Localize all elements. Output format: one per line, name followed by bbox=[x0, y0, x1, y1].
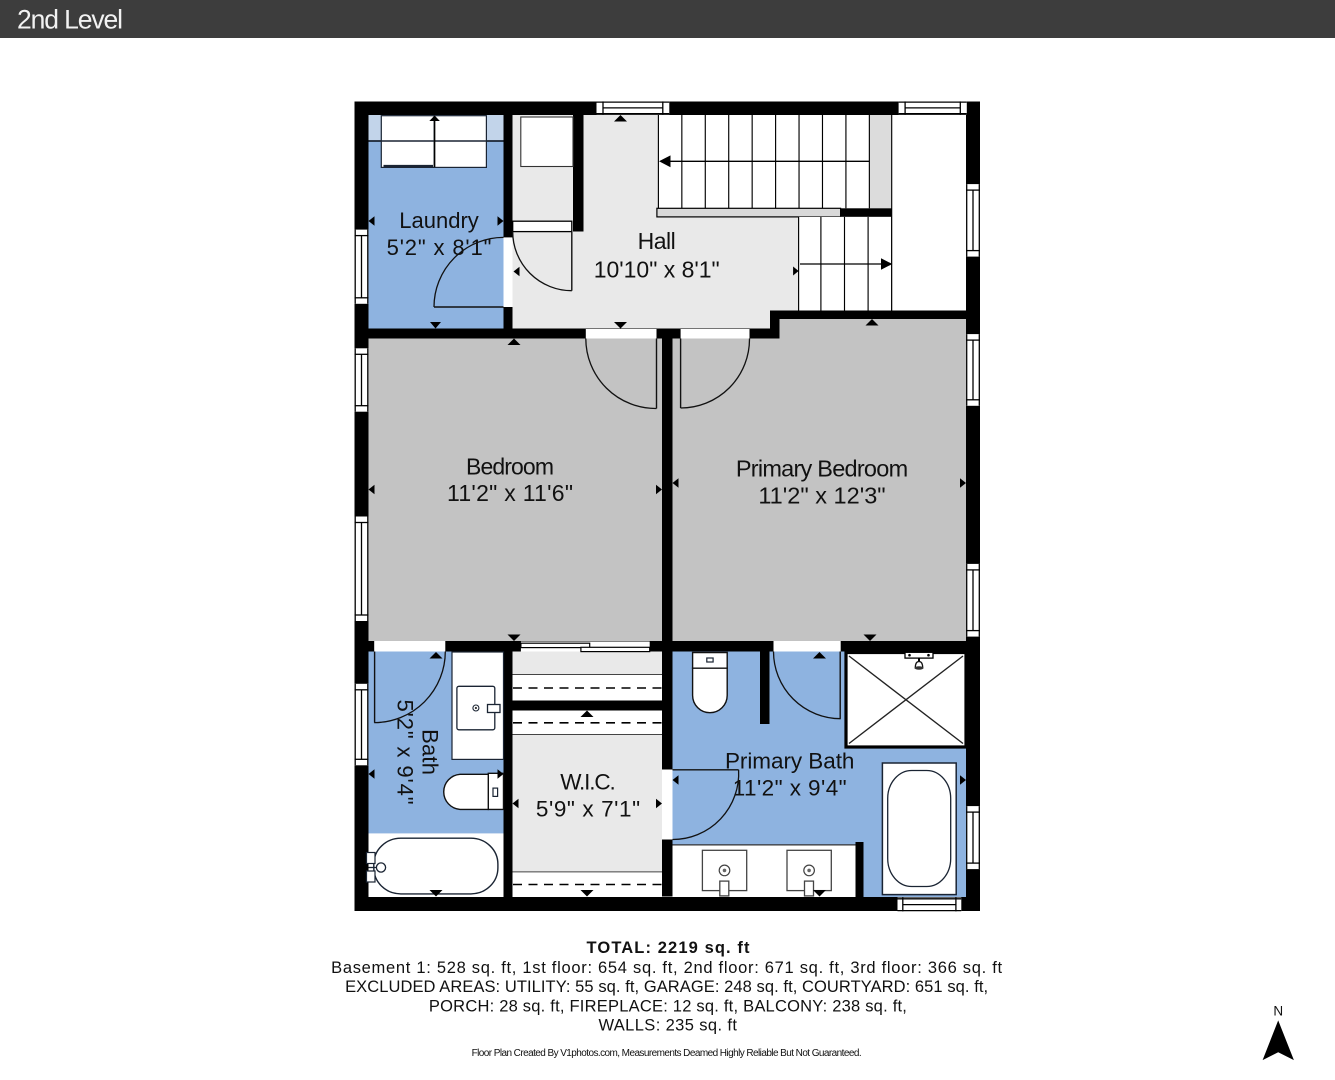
svg-text:11'2" x 12'3": 11'2" x 12'3" bbox=[758, 482, 885, 508]
svg-text:Basement 1: 528 sq. ft, 1st fl: Basement 1: 528 sq. ft, 1st floor: 654 s… bbox=[331, 959, 1002, 977]
svg-text:5'2" x 8'1": 5'2" x 8'1" bbox=[387, 235, 492, 260]
svg-text:Bath: Bath bbox=[418, 729, 443, 775]
svg-text:EXCLUDED AREAS: UTILITY: 55 sq: EXCLUDED AREAS: UTILITY: 55 sq. ft, GARA… bbox=[345, 978, 988, 996]
svg-text:11'2" x 11'6": 11'2" x 11'6" bbox=[447, 480, 573, 506]
svg-text:W.I.C.: W.I.C. bbox=[560, 770, 616, 795]
svg-text:Bedroom: Bedroom bbox=[466, 453, 554, 479]
svg-text:5'2" x 9'4": 5'2" x 9'4" bbox=[393, 700, 418, 805]
svg-text:Primary Bedroom: Primary Bedroom bbox=[736, 456, 908, 482]
svg-text:N: N bbox=[1273, 1004, 1283, 1019]
svg-text:Primary Bath: Primary Bath bbox=[725, 749, 855, 774]
svg-text:Hall: Hall bbox=[638, 228, 676, 254]
svg-text:11'2" x 9'4": 11'2" x 9'4" bbox=[733, 776, 847, 801]
svg-text:10'10" x 8'1": 10'10" x 8'1" bbox=[594, 257, 720, 283]
svg-text:2nd Level: 2nd Level bbox=[17, 4, 123, 34]
svg-text:Floor Plan Created By V1photos: Floor Plan Created By V1photos.com, Meas… bbox=[472, 1048, 862, 1059]
svg-text:WALLS: 235 sq. ft: WALLS: 235 sq. ft bbox=[598, 1016, 737, 1034]
svg-text:TOTAL: 2219 sq. ft: TOTAL: 2219 sq. ft bbox=[587, 939, 751, 957]
svg-text:PORCH: 28 sq. ft, FIREPLACE: 1: PORCH: 28 sq. ft, FIREPLACE: 12 sq. ft, … bbox=[429, 997, 907, 1015]
svg-text:5'9" x 7'1": 5'9" x 7'1" bbox=[536, 796, 640, 821]
svg-text:Laundry: Laundry bbox=[399, 208, 479, 233]
